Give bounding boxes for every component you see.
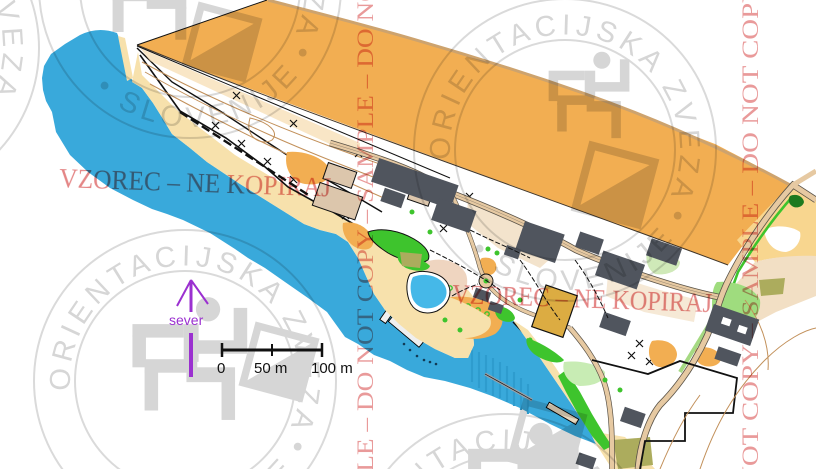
svg-text:50 m: 50 m (254, 360, 287, 377)
svg-text:100 m: 100 m (311, 360, 353, 377)
svg-text:sever: sever (169, 312, 204, 328)
svg-text:NOT COPY – SAMPLE – DO NOT COP: NOT COPY – SAMPLE – DO NOT COPY (738, 0, 763, 469)
svg-text:PLE – DO NOT COPY – SAMPLE – D: PLE – DO NOT COPY – SAMPLE – DO NO (353, 0, 378, 469)
svg-text:0: 0 (217, 360, 225, 377)
